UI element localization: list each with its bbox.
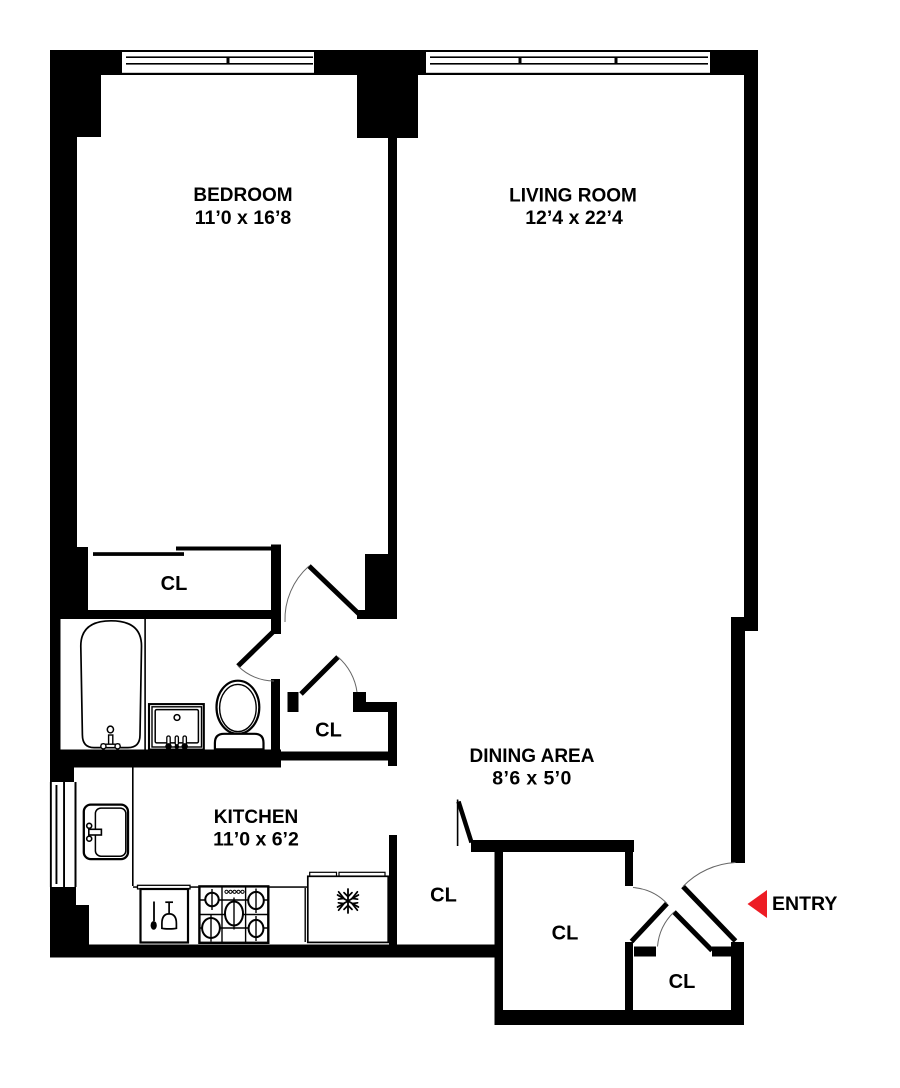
svg-text:CL: CL [315,720,342,742]
svg-text:CL: CL [430,885,457,907]
svg-text:CL: CL [552,923,579,945]
svg-text:CL: CL [669,971,696,993]
svg-text:DINING AREA: DINING AREA [470,746,595,767]
svg-text:8’6 x 5’0: 8’6 x 5’0 [492,768,572,790]
svg-text:11’0 x 6’2: 11’0 x 6’2 [213,829,299,851]
svg-text:BEDROOM: BEDROOM [193,185,292,206]
svg-text:KITCHEN: KITCHEN [214,807,298,828]
svg-text:CL: CL [161,573,188,595]
svg-text:11’0 x 16’8: 11’0 x 16’8 [195,207,292,229]
svg-text:LIVING ROOM: LIVING ROOM [509,186,637,207]
svg-text:ENTRY: ENTRY [772,893,837,915]
svg-text:12’4 x 22’4: 12’4 x 22’4 [525,207,623,229]
